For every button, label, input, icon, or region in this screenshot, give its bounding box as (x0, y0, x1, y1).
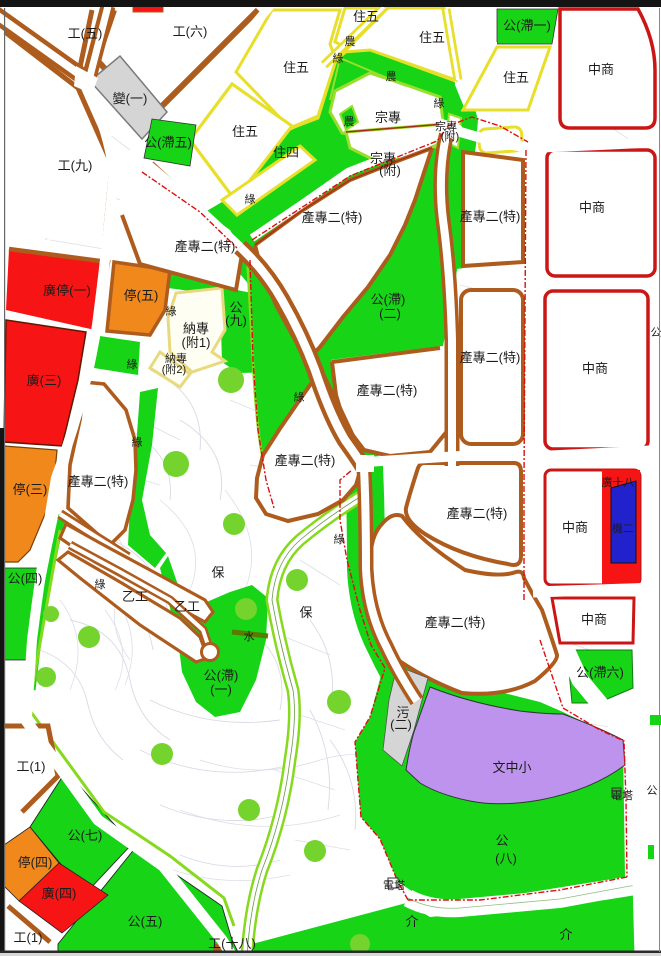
svg-text:住五: 住五 (353, 9, 379, 24)
svg-text:住五: 住五 (419, 30, 445, 45)
svg-text:產專二(特): 產專二(特) (175, 239, 236, 254)
svg-text:停(四): 停(四) (18, 855, 53, 870)
svg-text:住四: 住四 (273, 145, 299, 160)
svg-text:變(一): 變(一) (113, 91, 148, 106)
svg-text:產專二(特): 產專二(特) (357, 383, 418, 398)
svg-text:宗專: 宗專 (375, 110, 401, 125)
svg-text:(一): (一) (210, 682, 232, 697)
svg-text:產專二(特): 產專二(特) (275, 453, 336, 468)
svg-text:水: 水 (244, 630, 255, 643)
svg-text:廣(四): 廣(四) (42, 886, 77, 901)
svg-text:公(滯五): 公(滯五) (144, 135, 192, 150)
svg-text:公(四): 公(四) (8, 571, 43, 586)
svg-text:公(滯): 公(滯) (204, 668, 239, 683)
svg-text:停(五): 停(五) (124, 288, 159, 303)
svg-text:工(六): 工(六) (173, 24, 208, 39)
svg-text:綠: 綠 (334, 533, 345, 546)
svg-text:中商: 中商 (582, 361, 608, 376)
svg-text:介: 介 (559, 927, 572, 942)
svg-text:(附): (附) (441, 129, 459, 143)
svg-text:綠: 綠 (95, 578, 106, 591)
svg-text:保: 保 (211, 565, 224, 580)
svg-text:工(1): 工(1) (14, 930, 43, 945)
svg-text:乙工: 乙工 (122, 589, 148, 604)
svg-text:(附1): (附1) (182, 335, 211, 350)
svg-text:乙工: 乙工 (174, 599, 200, 614)
svg-text:工(1): 工(1) (17, 759, 46, 774)
svg-text:綠: 綠 (127, 358, 138, 371)
svg-text:住五: 住五 (232, 124, 258, 139)
svg-text:停(三): 停(三) (13, 482, 48, 497)
svg-text:產專二(特): 產專二(特) (460, 209, 521, 224)
svg-text:綠: 綠 (166, 305, 177, 318)
svg-text:中商: 中商 (579, 200, 605, 215)
svg-text:產專二(特): 產專二(特) (447, 506, 508, 521)
svg-text:(附2): (附2) (162, 362, 186, 376)
svg-text:公: 公 (495, 833, 508, 848)
svg-text:公(滯一): 公(滯一) (503, 18, 551, 33)
svg-text:住五: 住五 (283, 60, 309, 75)
svg-text:納專: 納專 (183, 321, 209, 336)
svg-text:產專二(特): 產專二(特) (425, 615, 486, 630)
svg-text:廣十八: 廣十八 (602, 475, 635, 489)
svg-text:介: 介 (405, 914, 418, 929)
svg-text:公: 公 (647, 785, 658, 797)
svg-text:公(滯): 公(滯) (371, 292, 406, 307)
svg-text:公(滯六): 公(滯六) (576, 665, 624, 680)
svg-text:(八): (八) (495, 851, 517, 866)
svg-text:工(五): 工(五) (68, 26, 103, 41)
svg-text:電塔: 電塔 (611, 789, 633, 802)
svg-text:農: 農 (386, 69, 397, 83)
svg-text:(九): (九) (225, 313, 247, 328)
svg-text:工(九): 工(九) (58, 158, 93, 173)
svg-text:機二: 機二 (612, 521, 634, 535)
svg-text:產專二(特): 產專二(特) (302, 210, 363, 225)
svg-text:農: 農 (344, 114, 355, 128)
svg-text:綠: 綠 (434, 97, 445, 110)
svg-text:公(七): 公(七) (68, 828, 103, 843)
svg-text:保: 保 (299, 605, 312, 620)
svg-text:中商: 中商 (562, 520, 588, 535)
svg-text:綠: 綠 (294, 391, 305, 404)
svg-text:產專二(特): 產專二(特) (68, 474, 129, 489)
svg-text:工(十八): 工(十八) (208, 936, 256, 951)
svg-text:中商: 中商 (581, 612, 607, 627)
svg-text:綠: 綠 (333, 52, 344, 65)
svg-text:廣停(一): 廣停(一) (43, 283, 91, 298)
svg-text:公(五): 公(五) (128, 914, 163, 929)
svg-text:(附): (附) (379, 163, 401, 178)
svg-text:中商: 中商 (588, 62, 614, 77)
svg-text:(二): (二) (379, 306, 401, 321)
svg-text:農: 農 (345, 34, 356, 48)
svg-text:電塔: 電塔 (383, 879, 405, 892)
svg-text:綠: 綠 (132, 436, 143, 449)
svg-text:住五: 住五 (503, 70, 529, 85)
svg-text:文中小: 文中小 (492, 760, 531, 775)
svg-text:(二): (二) (390, 717, 412, 732)
svg-text:廣(三): 廣(三) (27, 373, 62, 388)
svg-text:產專二(特): 產專二(特) (460, 350, 521, 365)
svg-text:綠: 綠 (245, 193, 256, 206)
